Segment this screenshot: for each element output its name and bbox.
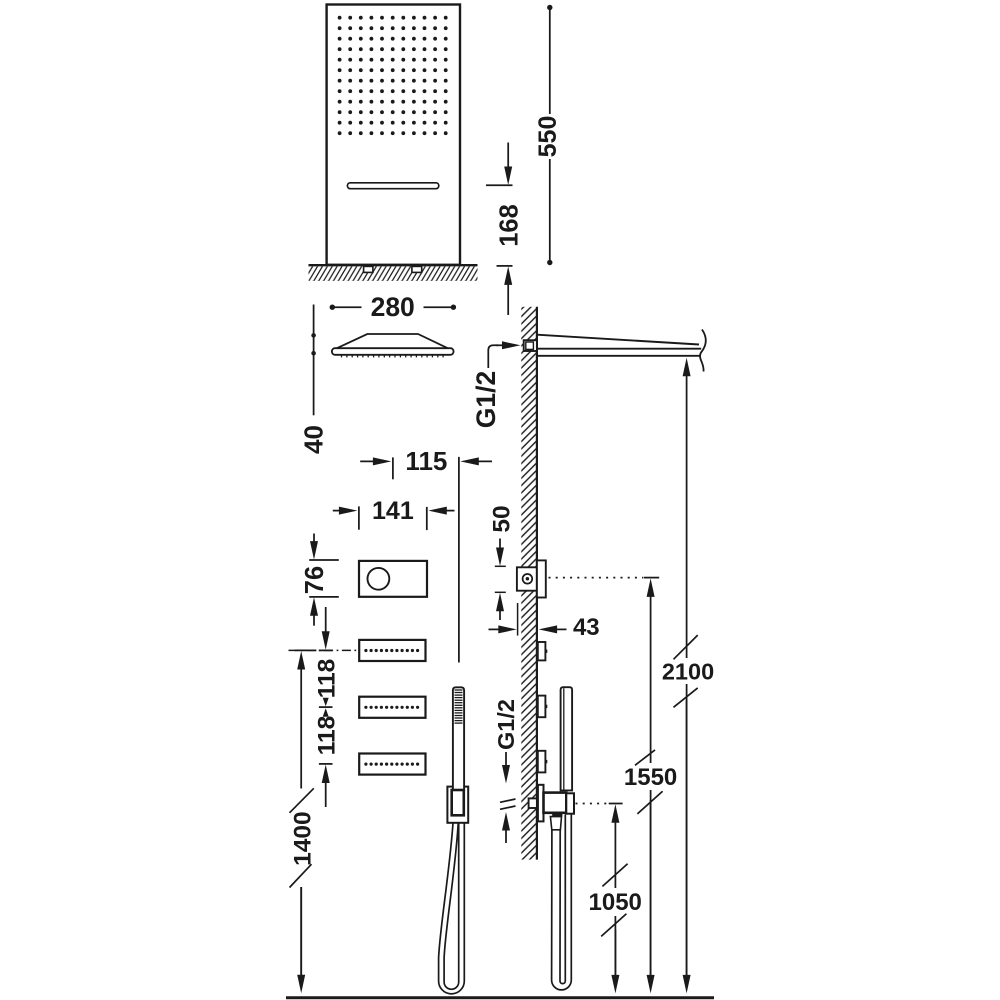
svg-text:50: 50: [489, 505, 516, 532]
svg-text:G1/2: G1/2: [471, 371, 501, 428]
svg-text:G1/2: G1/2: [493, 699, 519, 750]
svg-text:118: 118: [313, 659, 340, 699]
svg-text:1050: 1050: [589, 889, 642, 916]
svg-text:115: 115: [405, 446, 447, 476]
svg-text:43: 43: [573, 614, 600, 641]
svg-text:280: 280: [371, 292, 415, 322]
svg-text:141: 141: [372, 497, 414, 525]
svg-text:1400: 1400: [290, 811, 317, 866]
svg-text:40: 40: [299, 425, 329, 454]
svg-text:118: 118: [313, 716, 340, 756]
svg-text:550: 550: [534, 116, 562, 158]
svg-text:168: 168: [495, 204, 523, 247]
svg-text:1550: 1550: [624, 764, 677, 791]
svg-text:2100: 2100: [662, 659, 714, 685]
svg-text:76: 76: [301, 566, 329, 594]
